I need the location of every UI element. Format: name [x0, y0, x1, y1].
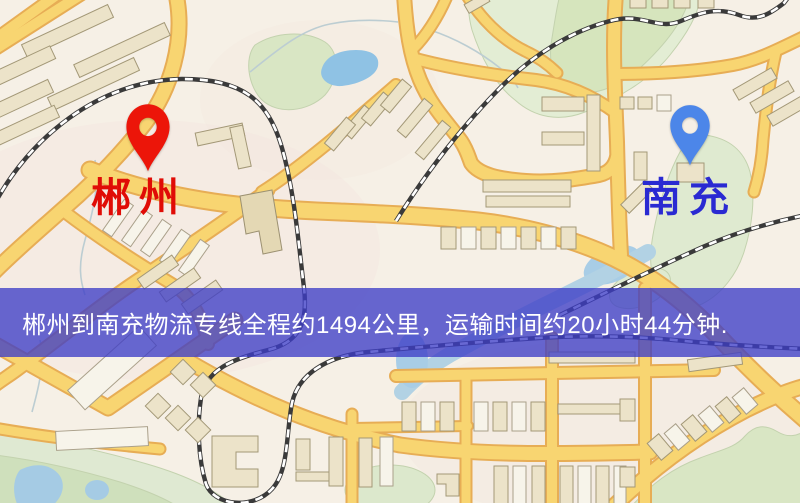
- origin-pin-icon[interactable]: [125, 103, 171, 173]
- destination-marker[interactable]: [669, 104, 711, 167]
- map-artwork: [0, 0, 800, 503]
- route-info-text: 郴州到南充物流专线全程约1494公里，运输时间约20小时44分钟.: [22, 305, 728, 340]
- map-viewport: 郴州 南充 郴州到南充物流专线全程约1494公里，运输时间约20小时44分钟.: [0, 0, 800, 503]
- destination-city-label: 南充: [641, 178, 737, 218]
- route-info-banner: 郴州到南充物流专线全程约1494公里，运输时间约20小时44分钟.: [0, 288, 800, 357]
- origin-city-label: 郴州: [91, 178, 187, 218]
- origin-marker[interactable]: [125, 103, 171, 173]
- destination-pin-icon[interactable]: [669, 104, 711, 167]
